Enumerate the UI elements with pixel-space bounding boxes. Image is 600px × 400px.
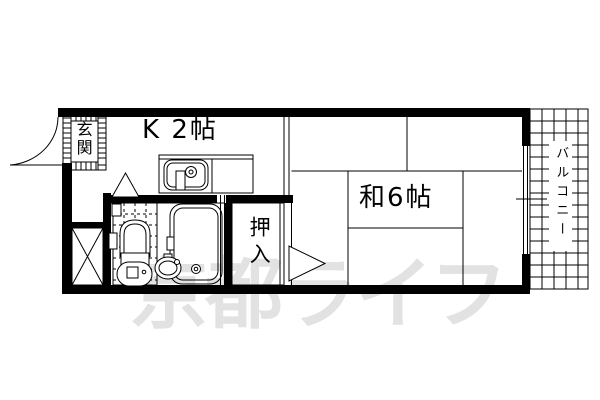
pipe-space-box [72,228,103,285]
bath-fixture-shelf [112,204,121,216]
paper-holder [109,233,117,249]
floor-plan-drawing [0,0,600,400]
kitchen-counter [159,155,253,193]
balcony-label: バルコニー [553,146,567,241]
closet-door-marker [289,246,325,281]
entrance-label: 玄関 [74,121,92,157]
toilet [117,220,152,286]
closet-label: 押入 [247,216,270,270]
bathroom-door-marker [112,173,139,197]
entry-door-arc [10,117,58,165]
wash-basin [155,254,181,279]
sink-knob [186,167,197,178]
entry-door [10,117,62,165]
japanese-room-label: 和6帖 [359,184,434,213]
bathroom [109,195,225,286]
tub-faucet [167,237,174,250]
floor-plan-page: 京都ライフ [0,0,600,400]
kitchen-label: K 2帖 [142,116,218,145]
sink-faucet [176,171,185,190]
tub-drain [192,265,201,274]
